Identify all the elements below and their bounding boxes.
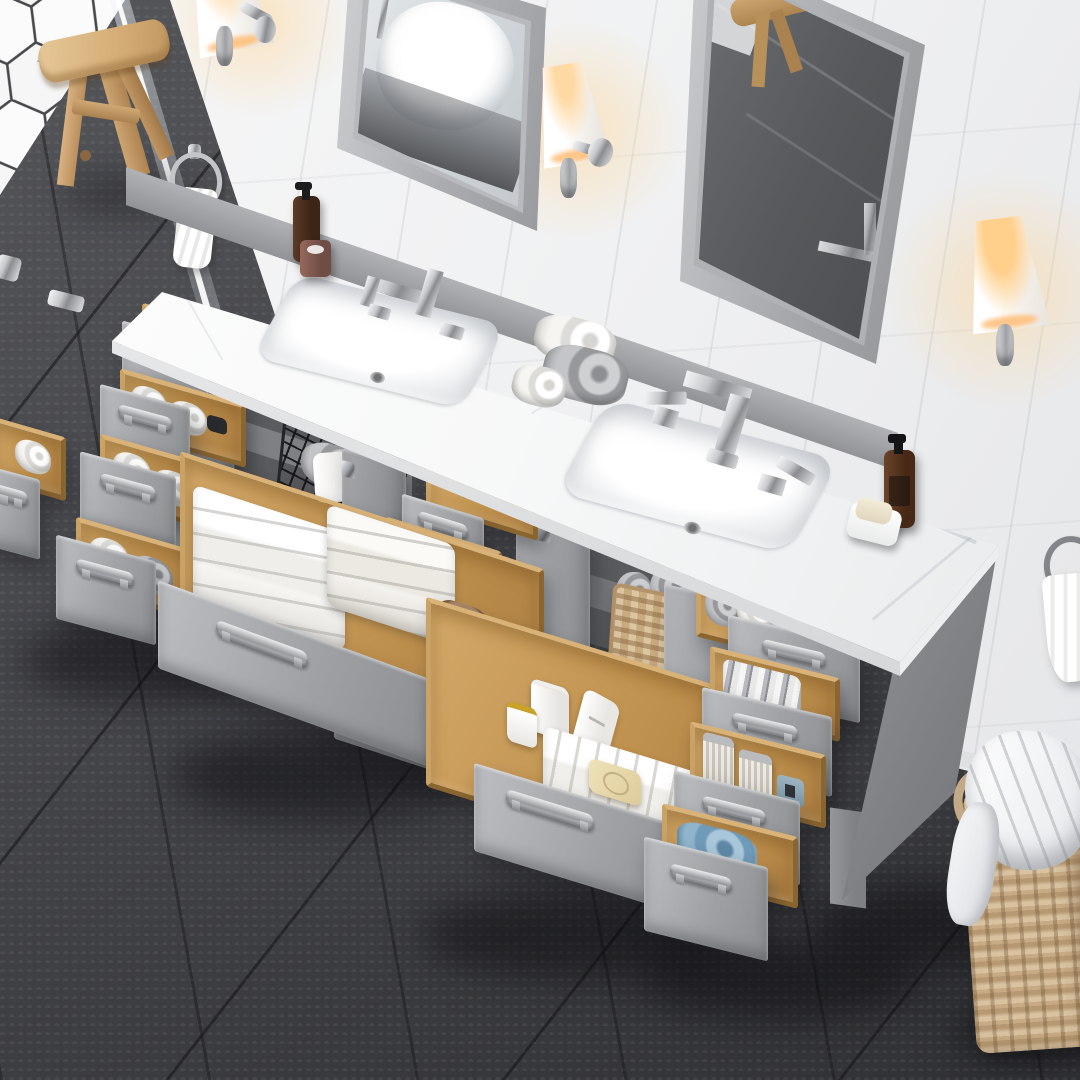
bathroom-scene xyxy=(0,0,1080,1080)
hand-towel xyxy=(1041,572,1080,683)
sconce3-finial xyxy=(996,324,1014,366)
mirror-left xyxy=(325,0,560,290)
stool-leg-front xyxy=(57,65,88,186)
small-jar-gold-lid xyxy=(507,700,537,749)
faucet-handle xyxy=(438,322,465,341)
black-item xyxy=(207,414,227,436)
laundry-hamper xyxy=(960,738,1080,1068)
faucet-handle-right-base xyxy=(757,473,787,497)
sconce-middle xyxy=(528,56,638,206)
drawer-front xyxy=(0,464,40,560)
towel-roll xyxy=(15,436,51,478)
candle-cup xyxy=(300,240,331,277)
faucet-handle-left-base xyxy=(651,405,679,429)
sconce1-finial xyxy=(216,26,233,66)
sconce2-finial xyxy=(560,158,577,198)
pump-bottle-left-spout xyxy=(295,182,312,190)
faucet-handle xyxy=(367,303,391,321)
sconce1-backplate xyxy=(254,16,276,43)
sconce-top-left xyxy=(180,0,300,70)
faucet-handle-left xyxy=(645,392,687,405)
amber-bottle-spout xyxy=(888,434,906,443)
towel-ring-right xyxy=(1036,528,1080,698)
sconce-right xyxy=(958,212,1078,372)
stool-knob xyxy=(80,150,91,161)
mirror-right xyxy=(668,0,948,375)
